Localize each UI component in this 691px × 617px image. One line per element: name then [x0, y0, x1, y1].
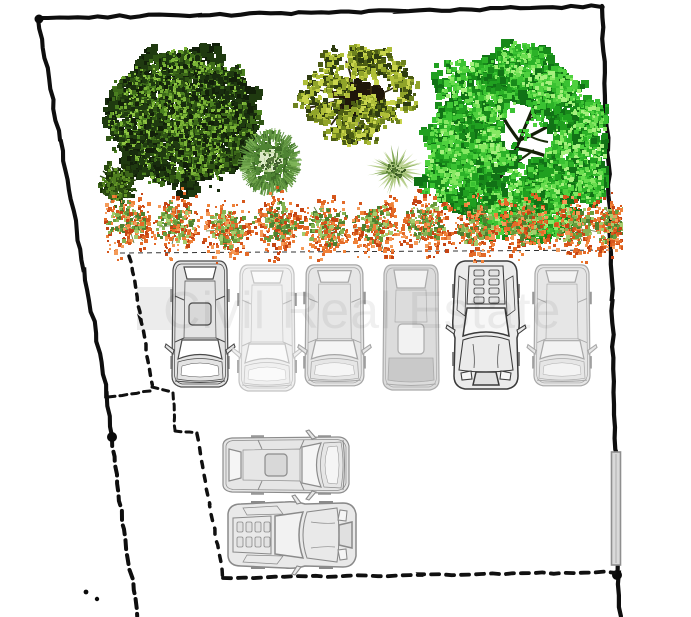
svg-text:Civil Real Estate: Civil Real Estate	[163, 282, 561, 340]
